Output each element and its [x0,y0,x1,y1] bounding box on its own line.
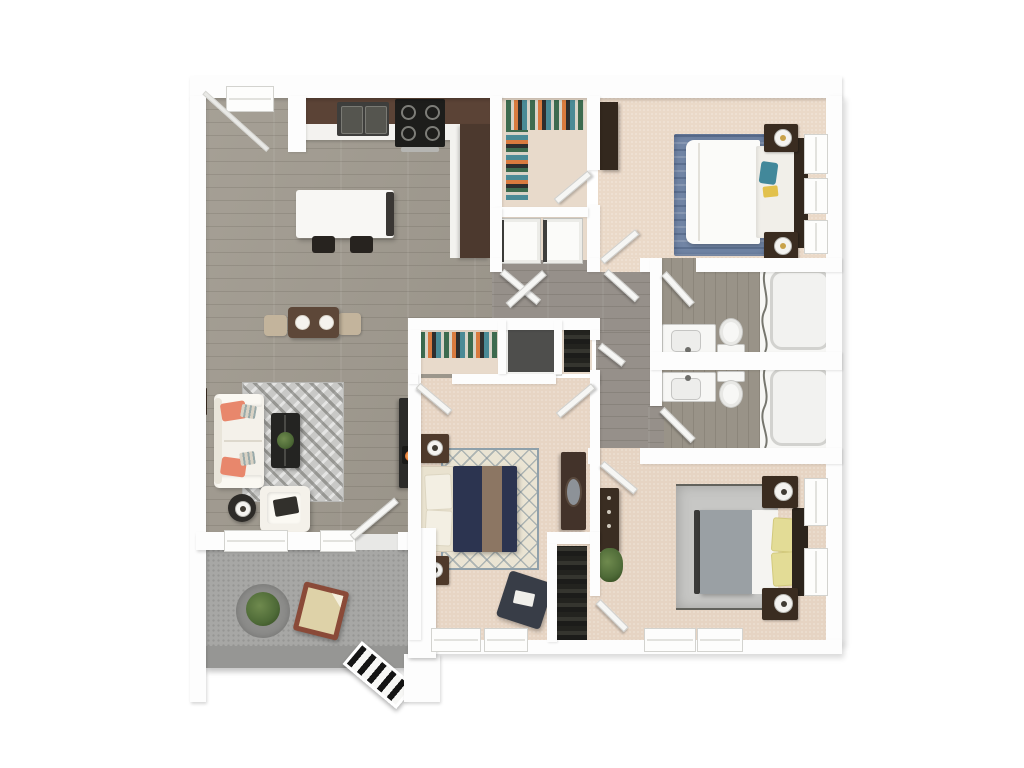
walkin-closet-door [554,171,592,205]
bedroom2-closet-door [416,383,453,415]
entry-door-leaf [202,91,269,152]
bathroom-upper-door [661,271,694,307]
bedroom3-closet-door [596,599,629,632]
doors [0,0,1024,768]
bathroom-lower-door [660,407,696,443]
laundry-door-leaf-a [500,269,541,305]
floorplan-render [0,0,1024,768]
bedroom2-entry-door [556,383,596,418]
hall-closet-door [598,343,626,367]
bedroom3-entry-door [600,461,638,495]
hall-door-leaf [604,269,640,302]
patio-door-leaf [350,498,399,541]
bedroom1-door [600,229,640,264]
